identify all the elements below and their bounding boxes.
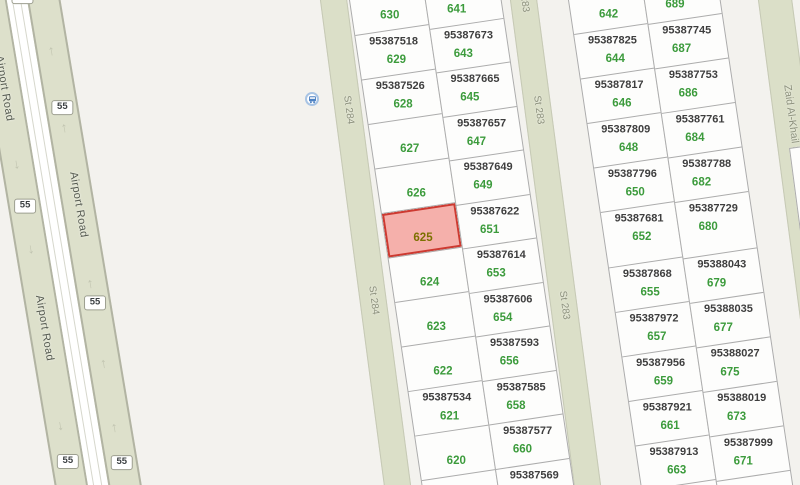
parcel-number: 95387817	[582, 79, 656, 91]
zaid-al-khail-street-label: Zaid Al-Khail St	[781, 84, 800, 157]
plot-number: 682	[665, 177, 739, 189]
route-55-shield: 55	[84, 295, 106, 310]
plot-number: 620	[419, 455, 493, 467]
plot-number: 647	[439, 136, 513, 148]
parcel-number: 95387753	[656, 69, 730, 81]
plot-number: 680	[671, 221, 745, 233]
parcel-number: 95387681	[602, 212, 676, 224]
parcel-number: 95387796	[595, 168, 669, 180]
parcel-number: 95387825	[575, 34, 649, 46]
plot-number: 656	[472, 356, 546, 368]
plot-number: 622	[406, 366, 480, 378]
plot-number: 679	[680, 278, 754, 290]
parcel-number: 95387649	[451, 161, 525, 173]
parcel-number: 95387956	[624, 357, 698, 369]
route-55-shield: 55	[110, 455, 132, 470]
parcel-number: 95387534	[410, 391, 484, 403]
plot-number: 657	[620, 331, 694, 343]
bus-stop-icon[interactable]	[305, 92, 319, 106]
parcel-number: 95387614	[464, 249, 538, 261]
street-284-label: St 284	[366, 285, 381, 315]
plot-number: 630	[353, 10, 427, 22]
parcel-number: 95388027	[698, 348, 772, 360]
plot-number: 625	[386, 232, 460, 244]
parcel-number: 95387593	[477, 337, 551, 349]
parcel-number: 95387673	[431, 29, 505, 41]
parcel-number: 95387622	[458, 205, 532, 217]
plot-number: 661	[633, 420, 707, 432]
plot-number: 644	[578, 53, 652, 65]
plot-number: 648	[592, 142, 666, 154]
parcel-number: 95387518	[357, 35, 431, 47]
parcel-number: 95387569	[497, 469, 571, 481]
plot-number: 677	[686, 322, 760, 334]
parcel-number: 95387809	[589, 123, 663, 135]
route-55-shield: 55	[56, 454, 78, 469]
parcel-number: 95387921	[630, 401, 704, 413]
plot-number: 686	[651, 88, 725, 100]
plot-number: 641	[420, 4, 494, 16]
plot-number: 649	[446, 180, 520, 192]
plot-number: 654	[466, 312, 540, 324]
parcel-number: 95387729	[676, 202, 750, 214]
plot-number: 628	[366, 99, 440, 111]
plot-number: 652	[605, 231, 679, 243]
plot-number: 626	[379, 188, 453, 200]
plot-number: 684	[658, 132, 732, 144]
plot-number: 650	[598, 187, 672, 199]
plot-number: 671	[706, 456, 780, 468]
parcel-number: 95387577	[491, 425, 565, 437]
route-55-shield: 55	[11, 0, 33, 4]
plot-number: 645	[433, 92, 507, 104]
plot-number: 655	[613, 287, 687, 299]
plot-number: 689	[638, 0, 712, 11]
plot-number: 660	[485, 444, 559, 456]
map-canvas[interactable]: 55 55 55 55 55 55 ↑ ↑ ↑ ↑ ↑ ↓ ↓ ↓ Airpor…	[0, 0, 800, 485]
bus-glyph	[308, 95, 317, 104]
plot-number: 653	[459, 268, 533, 280]
parcel-block-right: 9538783364295387825644953878176469538780…	[562, 0, 800, 485]
plot-number: 646	[585, 98, 659, 110]
plot-number: 675	[693, 367, 767, 379]
parcel-number: 95387665	[438, 73, 512, 85]
plot-number: 643	[426, 48, 500, 60]
parcel-number: 95388019	[705, 392, 779, 404]
route-55-shield: 55	[51, 100, 73, 115]
parcel-number: 95388043	[685, 259, 759, 271]
route-55-shield: 55	[14, 199, 36, 214]
plot-number: 623	[399, 321, 473, 333]
plot-number: 659	[626, 376, 700, 388]
parcel-number: 95387833	[569, 0, 643, 2]
plot-number: 673	[700, 411, 774, 423]
plot-number: 687	[645, 43, 719, 55]
parcel-number: 95387999	[711, 437, 785, 449]
parcel-number: 95387657	[445, 117, 519, 129]
parcel-number: 95387788	[670, 158, 744, 170]
plot-number: 663	[640, 465, 714, 477]
plot-number: 627	[373, 143, 447, 155]
street-283-label: St 283	[516, 0, 531, 13]
parcel-number: 95387972	[617, 312, 691, 324]
parcel-number: 95387606	[471, 293, 545, 305]
parcel-number: 95387497	[350, 0, 424, 3]
street-283-label: St 283	[531, 95, 546, 125]
street-283-label: St 283	[557, 290, 572, 320]
plot-number: 621	[413, 410, 487, 422]
plot-number: 651	[453, 224, 527, 236]
parcel-number: 95387761	[663, 113, 737, 125]
parcel-number: 95387526	[363, 80, 437, 92]
parcel-number: 95387868	[610, 268, 684, 280]
plot-number: 642	[572, 9, 646, 21]
parcel-number: 95387745	[650, 24, 724, 36]
parcel-number: 95387913	[637, 446, 711, 458]
parcel-number: 95387585	[484, 381, 558, 393]
street-284-label: St 284	[341, 95, 356, 125]
plot-number: 629	[359, 54, 433, 66]
parcel-number: 95388035	[691, 303, 765, 315]
plot-number: 658	[479, 400, 553, 412]
airport-road: 55 55 55 55 55 55 ↑ ↑ ↑ ↑ ↑ ↓ ↓ ↓ Airpor…	[0, 0, 162, 485]
plot-number: 624	[393, 277, 467, 289]
